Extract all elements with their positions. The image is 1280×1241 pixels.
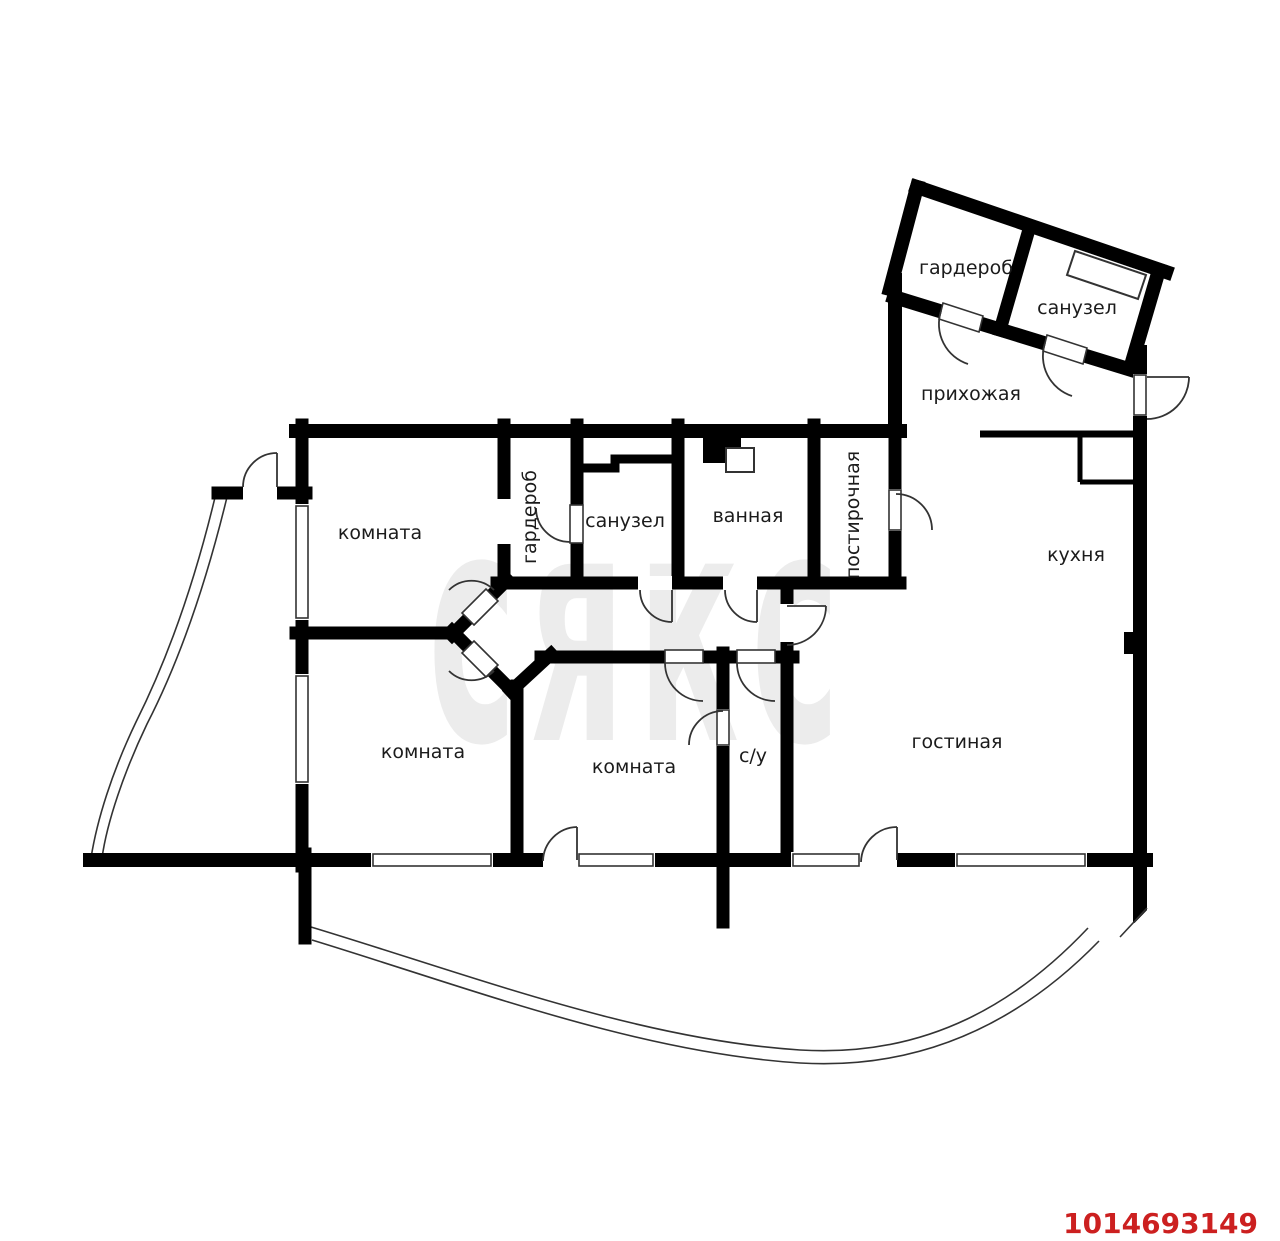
window [373,854,491,866]
window [296,506,308,618]
room-label-sanuzel-top: санузел [585,510,665,532]
walls-thin [980,434,1134,482]
window [957,854,1085,866]
floor-plan-page: сякс [0,0,1280,1241]
room-label-room-top: комната [338,522,422,544]
vent-shaft-notch [726,448,754,472]
bottom-balcony-inner [312,940,1099,1064]
room-label-sanuzel-annex: санузел [1037,297,1117,319]
room-label-wardrobe-inner: гардероб [519,470,541,564]
window [296,676,308,782]
room-label-wc: с/у [739,745,767,767]
room-label-wardrobe-annex: гардероб [919,257,1013,279]
room-label-living-room: гостиная [912,731,1003,753]
room-label-kitchen: кухня [1047,544,1105,566]
window [793,854,859,866]
room-label-room-bottom-mid: комната [592,756,676,778]
walls-interior [218,226,1030,938]
room-label-laundry: постирочная [842,451,864,579]
window [579,854,653,866]
pilaster [1124,632,1133,654]
floor-plan: сякс [0,0,1280,1241]
left-balcony-outer [91,489,217,858]
room-label-room-bottom-left: комната [381,741,465,763]
listing-id: 1014693149 [1063,1207,1258,1240]
room-label-bath: ванная [713,505,784,527]
room-label-hallway: прихожая [921,383,1021,405]
left-balcony-inner [102,493,228,858]
